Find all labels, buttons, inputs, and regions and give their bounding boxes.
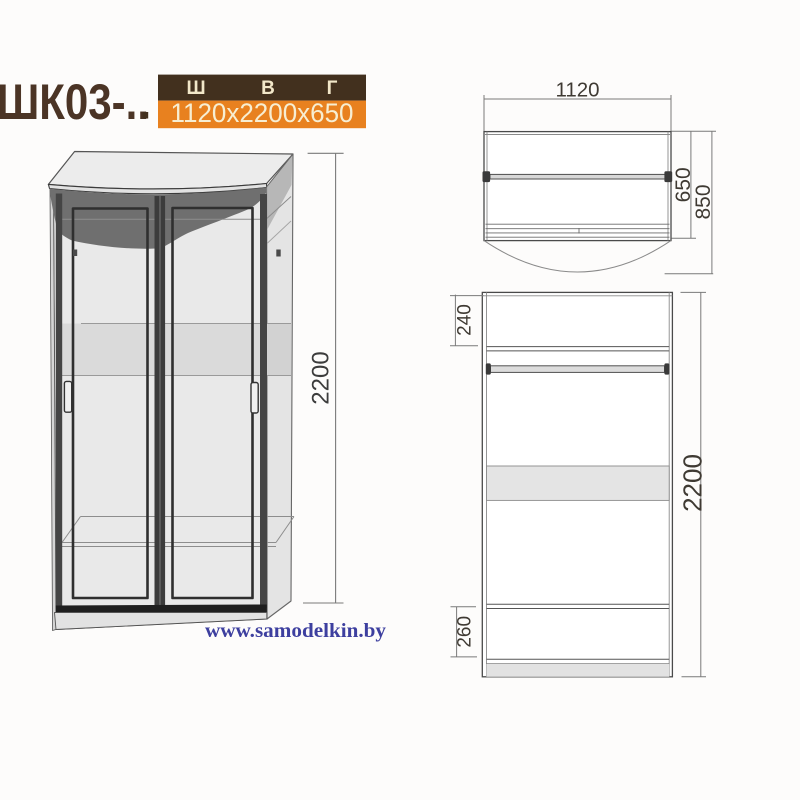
svg-text:www.samodelkin.by: www.samodelkin.by <box>205 620 387 642</box>
svg-text:ШК03-..: ШК03-.. <box>0 74 149 130</box>
svg-text:2200: 2200 <box>678 454 708 512</box>
svg-text:1120: 1120 <box>555 79 599 102</box>
svg-text:260: 260 <box>455 616 476 648</box>
svg-text:В: В <box>261 78 275 99</box>
svg-text:850: 850 <box>692 184 715 219</box>
svg-text:Г: Г <box>327 78 338 99</box>
svg-text:2200: 2200 <box>307 351 334 404</box>
svg-text:240: 240 <box>455 304 476 336</box>
svg-text:Ш: Ш <box>186 78 205 99</box>
svg-text:1120x2200x650: 1120x2200x650 <box>171 98 354 128</box>
